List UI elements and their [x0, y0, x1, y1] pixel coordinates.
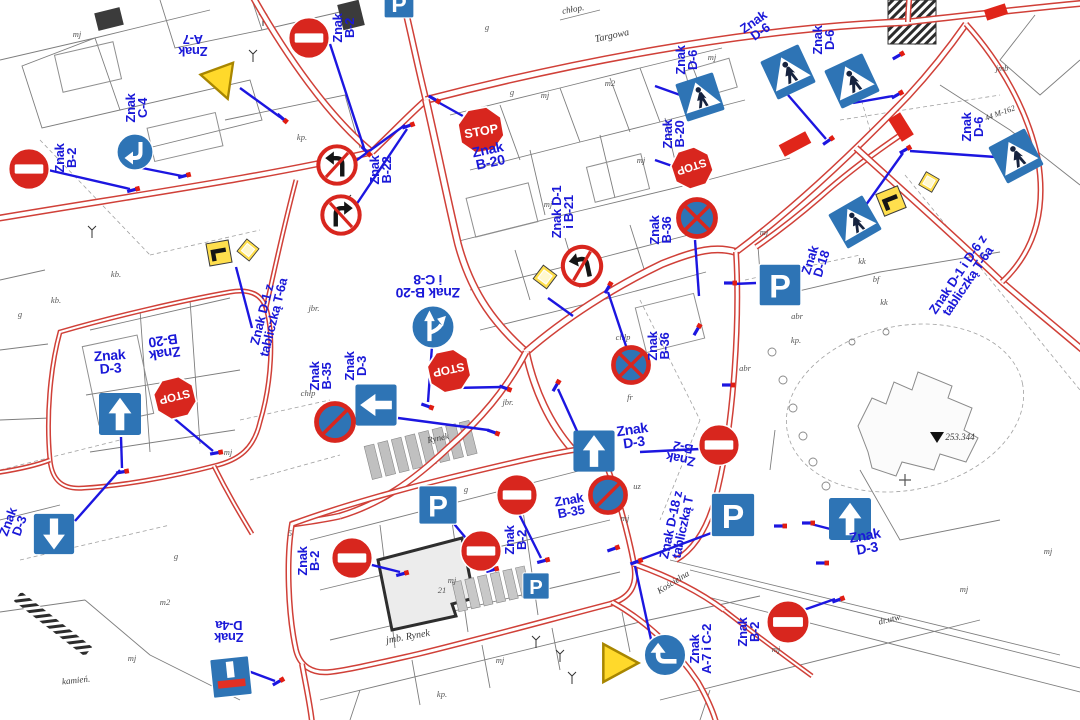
sign-label: Znak B-2: [665, 438, 698, 467]
sign-label: Znak B-2: [504, 525, 528, 554]
sign-label: Znak D-6: [675, 45, 699, 74]
sign-label: Znak D-1 i D-6 z tabliczką T-6a: [927, 233, 998, 323]
sign-label: Znak D-4a: [214, 619, 243, 643]
sign-label: Znak A-7: [178, 33, 207, 57]
sign-label: Znak B-2: [54, 143, 78, 172]
sign-label: Znak B-36: [647, 331, 671, 360]
sign-label: Znak D-3: [93, 348, 126, 376]
sign-label: Znak D-18 z tabliczką T: [658, 490, 696, 562]
sign-label: Znak B-20: [471, 140, 507, 172]
sign-label: Znak B-36: [649, 215, 673, 244]
map-canvas[interactable]: TargowaRynekjmb. RynekKościelnakamień.dr…: [0, 0, 1080, 720]
sign-label: Znak C-4: [125, 93, 149, 122]
sign-label: Znak B-2: [332, 13, 356, 42]
sign-label: Znak B-35: [309, 361, 333, 390]
sign-label: Znak D-3: [848, 527, 883, 558]
sign-label: Znak D-1 i B-21: [551, 186, 575, 239]
sign-label: Znak B-20: [662, 119, 686, 148]
sign-label: Znak B-22: [369, 155, 393, 184]
sign-label: Znak D-6: [738, 9, 776, 45]
sign-label: Znak B-35: [554, 492, 587, 521]
sign-label: Znak D-3: [344, 351, 368, 380]
sign-label: Znak D-18: [800, 244, 832, 279]
sign-labels-layer: Znak A-7Znak C-4Znak B-2Znak B-2Znak B-2…: [0, 0, 1080, 720]
sign-label: Znak B-2: [737, 617, 761, 646]
sign-label: Znak B-20: [147, 332, 182, 362]
sign-label: Znak D-3: [616, 421, 651, 451]
sign-label: Znak B-2: [297, 546, 321, 575]
sign-label: Znak D-6: [812, 25, 836, 54]
sign-label: Znak D-3: [0, 506, 30, 542]
sign-label: Znak D-1 z tabliczką T-6a: [247, 274, 290, 358]
sign-label: Znak D-6: [961, 112, 985, 141]
sign-label: Znak A-7 i C-2: [689, 624, 713, 674]
sign-label: Znak B-20 i C-8: [396, 273, 460, 299]
